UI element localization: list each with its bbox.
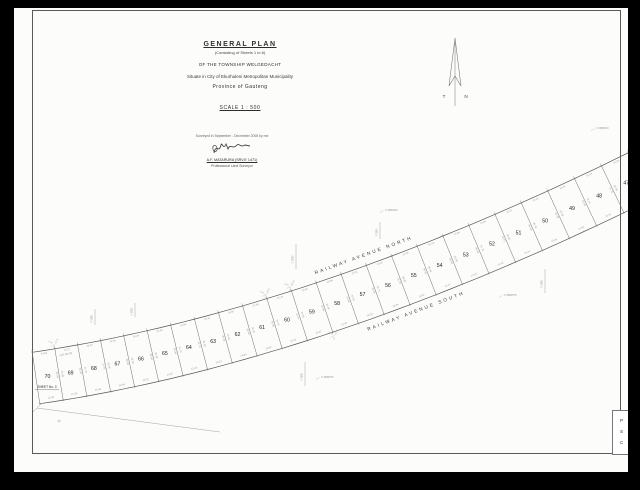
svg-text:30.48: 30.48 xyxy=(130,357,134,364)
svg-text:12.40: 12.40 xyxy=(191,366,198,371)
plot-number: 58 xyxy=(334,301,340,307)
svg-text:15.31: 15.31 xyxy=(290,338,297,343)
plan-drawing: 30.4830.3830.3831.7531.7530.3830.3830.48… xyxy=(14,8,628,472)
grid-mark: Y 2880X 2880000 xyxy=(376,208,399,239)
svg-text:14.94: 14.94 xyxy=(578,225,585,231)
svg-text:14.97: 14.97 xyxy=(471,272,478,277)
svg-text:Y 2880: Y 2880 xyxy=(131,307,134,315)
street-label-railway-avenue-south: RAILWAY AVENUE SOUTH xyxy=(367,290,466,331)
svg-text:30.38: 30.38 xyxy=(60,371,64,378)
svg-text:30.38: 30.38 xyxy=(320,305,325,312)
plot-number: 68 xyxy=(91,366,97,372)
plot-boundary xyxy=(32,352,39,403)
plot-number: 69 xyxy=(68,370,74,376)
svg-text:2.04: 2.04 xyxy=(267,288,271,293)
svg-text:12.19: 12.19 xyxy=(291,280,296,286)
svg-text:30.38: 30.38 xyxy=(202,340,207,347)
svg-text:14.97: 14.97 xyxy=(315,330,322,335)
svg-text:14.94: 14.94 xyxy=(418,293,425,298)
plot-number: 66 xyxy=(138,357,144,363)
svg-text:14.94: 14.94 xyxy=(41,352,48,356)
plot-number: 52 xyxy=(489,242,495,248)
svg-text:31.75: 31.75 xyxy=(501,236,506,243)
svg-text:14.94: 14.94 xyxy=(326,279,333,284)
svg-text:14.94: 14.94 xyxy=(551,238,558,244)
svg-text:14.94: 14.94 xyxy=(301,287,308,292)
grid-mark: Y 2880 xyxy=(131,303,136,317)
svg-text:12.40: 12.40 xyxy=(402,251,409,256)
plot-number: 67 xyxy=(114,362,120,368)
plot-number: 55 xyxy=(411,273,417,279)
north-arrow: TN xyxy=(443,38,468,106)
plan-page: GENERAL PLAN (Consisting of Sheets 1 to … xyxy=(14,8,628,472)
svg-text:15.31: 15.31 xyxy=(444,283,451,288)
svg-text:14.94: 14.94 xyxy=(265,346,272,351)
plot-number: 50 xyxy=(542,218,548,224)
svg-text:15.31: 15.31 xyxy=(204,317,211,322)
bearing-note: (245.00.00) xyxy=(59,352,72,357)
svg-text:14.94: 14.94 xyxy=(392,303,399,308)
plot-number: 54 xyxy=(437,263,443,269)
plot-number: 48 xyxy=(596,194,602,200)
svg-text:14.94: 14.94 xyxy=(240,353,247,358)
svg-text:Y 2880: Y 2880 xyxy=(376,228,379,236)
svg-text:30.38: 30.38 xyxy=(107,362,111,369)
svg-text:14.97: 14.97 xyxy=(228,310,235,315)
svg-text:14.97: 14.97 xyxy=(377,261,384,266)
svg-text:12.40: 12.40 xyxy=(497,261,504,266)
scanned-plan-screenshot: { "document": { "title_block": { "title"… xyxy=(0,0,640,490)
svg-text:15.31: 15.31 xyxy=(351,270,358,275)
svg-text:30.38: 30.38 xyxy=(221,335,226,342)
svg-text:12.40: 12.40 xyxy=(252,303,259,308)
svg-text:30.38: 30.38 xyxy=(125,358,129,365)
svg-text:14.94: 14.94 xyxy=(180,323,187,328)
svg-text:15.24: 15.24 xyxy=(366,312,373,317)
plot-number: 65 xyxy=(162,351,168,357)
svg-text:X 2880575: X 2880575 xyxy=(504,293,517,297)
approval-stamp-box: P S C xyxy=(612,410,628,455)
svg-text:31.75: 31.75 xyxy=(275,319,280,326)
svg-text:Y 2880: Y 2880 xyxy=(91,314,94,322)
svg-text:15.24: 15.24 xyxy=(428,241,435,246)
plot-number: 59 xyxy=(309,309,315,315)
svg-text:30.38: 30.38 xyxy=(251,327,256,334)
svg-text:31.75: 31.75 xyxy=(295,313,300,320)
svg-text:15.31: 15.31 xyxy=(142,378,149,382)
svg-text:30.38: 30.38 xyxy=(371,287,376,294)
svg-text:Y 2880: Y 2880 xyxy=(541,279,544,287)
svg-text:Y 2880: Y 2880 xyxy=(292,255,295,263)
svg-text:30.48: 30.48 xyxy=(246,328,251,335)
svg-text:14.97: 14.97 xyxy=(167,372,174,376)
svg-text:31.75: 31.75 xyxy=(376,285,381,292)
plot-strip: 30.4830.3830.3831.7531.7530.3830.3830.48… xyxy=(32,150,628,432)
street-label-railway-avenue-north: RAILWAY AVENUE NORTH xyxy=(314,235,413,275)
plot-number: 60 xyxy=(284,317,290,323)
plot-number: 53 xyxy=(463,253,469,259)
plot-number: 51 xyxy=(516,230,522,236)
svg-text:14.97: 14.97 xyxy=(86,344,93,348)
svg-text:X 2880000: X 2880000 xyxy=(596,126,609,130)
svg-text:30.38: 30.38 xyxy=(581,200,587,207)
grid-mark: X 2880000 xyxy=(591,126,609,131)
grid-mark: Y 2880X 2880575 xyxy=(301,362,335,386)
plot-number: 64 xyxy=(186,345,192,351)
plot-number: 61 xyxy=(259,325,265,331)
svg-text:31.75: 31.75 xyxy=(178,346,183,353)
svg-text:30.48: 30.48 xyxy=(448,257,453,264)
stamp-letter: P xyxy=(620,418,623,423)
svg-text:31.75: 31.75 xyxy=(197,341,202,348)
svg-text:15.24: 15.24 xyxy=(277,295,284,300)
plot-number: 57 xyxy=(360,292,366,298)
svg-text:12.40: 12.40 xyxy=(341,321,348,326)
stamp-letter: C xyxy=(620,440,623,445)
svg-text:14.94: 14.94 xyxy=(454,231,461,236)
svg-text:X 2880000: X 2880000 xyxy=(385,208,398,212)
svg-text:14.94: 14.94 xyxy=(156,329,163,333)
svg-text:30.48: 30.48 xyxy=(325,303,330,310)
svg-text:30.48: 30.48 xyxy=(427,266,432,273)
svg-text:30.38: 30.38 xyxy=(173,347,178,354)
svg-text:30.38: 30.38 xyxy=(422,268,427,275)
svg-text:15.24: 15.24 xyxy=(524,250,531,255)
plot-number: 47 xyxy=(623,180,628,186)
svg-text:30.48: 30.48 xyxy=(226,334,231,341)
svg-text:14.94: 14.94 xyxy=(118,383,125,387)
grid-mark: Y 2880 xyxy=(91,309,96,325)
svg-text:31.75: 31.75 xyxy=(608,187,614,194)
svg-text:31.75: 31.75 xyxy=(101,363,105,370)
svg-text:15.24: 15.24 xyxy=(71,392,78,396)
svg-text:30.38: 30.38 xyxy=(154,352,158,359)
svg-text:30.38: 30.38 xyxy=(78,368,82,375)
svg-text:30.38: 30.38 xyxy=(350,294,355,301)
svg-text:12.40: 12.40 xyxy=(109,339,116,343)
svg-text:15.31: 15.31 xyxy=(605,213,612,219)
svg-text:30.48: 30.48 xyxy=(554,212,560,219)
plot-number: 63 xyxy=(210,339,216,345)
grid-mark: Y 2880 xyxy=(292,244,297,269)
sheet-number-label: SHEET No. 3 xyxy=(37,385,56,389)
grid-mark: X 2880575 xyxy=(499,293,517,298)
auxiliary-boundary-line xyxy=(37,408,220,432)
north-arrow-label-t: T xyxy=(443,94,446,99)
svg-text:30.38: 30.38 xyxy=(300,311,305,318)
stamp-letter: S xyxy=(620,429,623,434)
plot-number: 70 xyxy=(45,374,51,380)
svg-text:30.38: 30.38 xyxy=(527,224,533,231)
svg-text:0.76: 0.76 xyxy=(335,329,339,334)
svg-text:12.40: 12.40 xyxy=(47,396,54,400)
grid-mark: Y 2880 xyxy=(541,269,546,293)
svg-text:30.48: 30.48 xyxy=(149,353,153,360)
svg-text:30.38: 30.38 xyxy=(401,276,406,283)
svg-text:2.31: 2.31 xyxy=(331,336,334,341)
svg-text:2.31: 2.31 xyxy=(55,338,60,343)
svg-text:14.94: 14.94 xyxy=(95,388,102,392)
svg-text:X 2880575: X 2880575 xyxy=(321,375,334,379)
street-edge-top xyxy=(32,153,628,353)
svg-text:30.48: 30.48 xyxy=(55,371,59,378)
plot-number: 62 xyxy=(235,332,241,338)
svg-text:30.38: 30.38 xyxy=(474,247,479,254)
svg-text:30.38: 30.38 xyxy=(270,321,275,328)
svg-text:Y 2880: Y 2880 xyxy=(301,372,304,380)
svg-text:30.48: 30.48 xyxy=(345,296,350,303)
plot-number: 49 xyxy=(569,206,575,212)
svg-text:31.75: 31.75 xyxy=(83,367,87,374)
svg-text:15.24: 15.24 xyxy=(215,360,222,365)
svg-text:15.24: 15.24 xyxy=(133,334,140,338)
plot-number: 56 xyxy=(385,283,391,289)
svg-text:31.75: 31.75 xyxy=(396,278,401,285)
north-arrow-label-n: N xyxy=(464,94,467,99)
